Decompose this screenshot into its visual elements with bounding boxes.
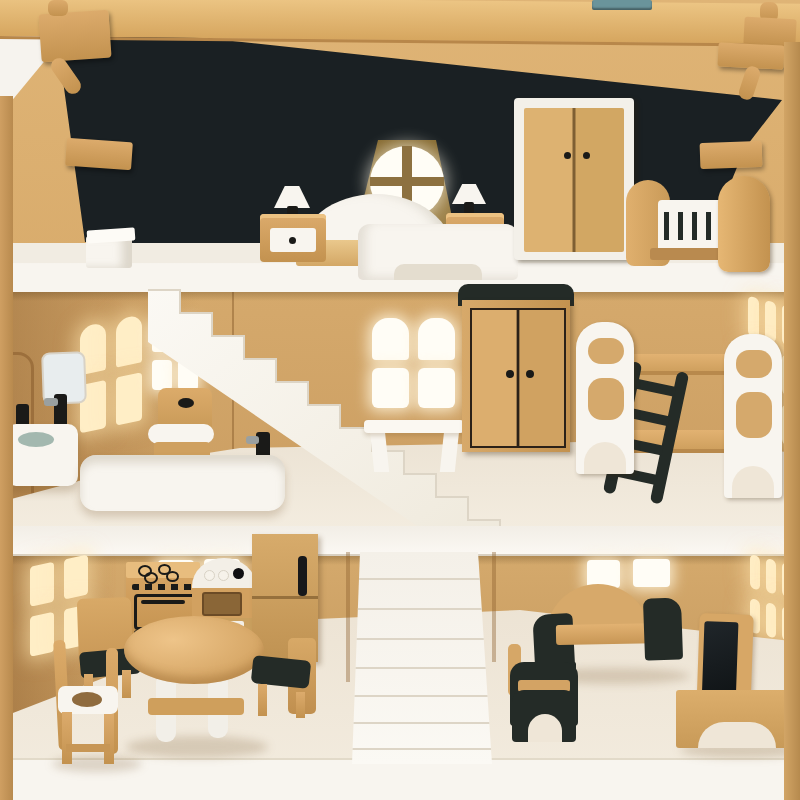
right-outer-wall xyxy=(784,42,800,800)
bathtub xyxy=(80,455,285,511)
sink-knob xyxy=(204,570,215,581)
metal-hinge xyxy=(592,0,652,10)
stove-burner xyxy=(144,572,158,584)
panel-cutout xyxy=(588,338,624,364)
sofa-arm-right xyxy=(643,597,683,660)
wardrobe-knob xyxy=(506,370,514,378)
armchair-arch xyxy=(528,714,562,742)
highchair-leg xyxy=(62,712,72,764)
sink-basin xyxy=(18,432,54,447)
center-staircase xyxy=(352,552,492,764)
chair-leg xyxy=(296,692,305,718)
window-slat xyxy=(750,554,760,590)
stair-wall-edge xyxy=(492,552,496,662)
kitchen-sink-basin xyxy=(202,592,242,616)
toilet-seat xyxy=(148,424,214,444)
wardrobe-knob xyxy=(526,370,534,378)
chair-leg xyxy=(258,684,267,716)
drawer-knob xyxy=(289,237,296,244)
stair-step-line xyxy=(352,578,492,580)
oven-handle xyxy=(141,600,185,604)
roof-peg-bar xyxy=(700,141,763,169)
roof-peg-block xyxy=(38,10,111,63)
table-brace xyxy=(148,698,244,715)
table-shadow xyxy=(126,736,268,758)
ridge-beam xyxy=(0,0,800,47)
highchair-crossbar xyxy=(66,744,110,752)
fridge-seam xyxy=(252,596,318,599)
toilet-flush-button xyxy=(178,398,194,408)
window-slat xyxy=(748,296,759,339)
left-outer-wall xyxy=(0,96,13,800)
sink-knob-black xyxy=(233,568,244,579)
roof-peg-dowel xyxy=(48,0,68,16)
panel-arch xyxy=(732,466,774,498)
wardrobe-knob xyxy=(583,152,590,159)
panel-cutout xyxy=(736,350,772,378)
stair-wall-edge xyxy=(346,552,350,682)
tv-bench xyxy=(676,690,798,748)
wardrobe-doors xyxy=(470,308,566,448)
bunk-panel-right xyxy=(724,334,782,498)
bench-arch xyxy=(698,722,776,748)
roof-peg-bar xyxy=(65,138,133,171)
living-window xyxy=(633,559,670,587)
wardrobe-knob xyxy=(564,152,571,159)
stair-step-line xyxy=(352,608,492,610)
window-slat xyxy=(766,558,776,594)
window-pane xyxy=(30,612,54,657)
ladder-rung xyxy=(635,379,676,397)
panel-cutout xyxy=(736,392,772,438)
middle-floor-slab xyxy=(0,526,800,556)
dollhouse-photo xyxy=(0,0,800,800)
table-top xyxy=(124,616,264,684)
highchair-seat-hole xyxy=(72,692,102,707)
window-pane xyxy=(64,554,88,599)
stair-step-line xyxy=(352,722,492,724)
stair-step-line xyxy=(352,638,492,640)
ladder-rung xyxy=(629,408,670,426)
sink-knob xyxy=(218,570,229,581)
panel-arch xyxy=(584,442,626,474)
wardrobe-doors xyxy=(524,108,624,252)
window-slat xyxy=(766,602,776,638)
crib-slats xyxy=(664,212,720,240)
window-mullion-horizontal xyxy=(370,177,444,186)
stove-burner xyxy=(166,571,179,582)
window-pane xyxy=(30,562,54,607)
bed-footboard-arch xyxy=(394,264,482,280)
fridge-handle xyxy=(298,556,307,596)
panel-cutout xyxy=(588,378,624,420)
stair-step-line xyxy=(352,748,492,750)
stair-step-line xyxy=(352,667,492,669)
faucet-spout xyxy=(44,398,58,406)
tub-spout xyxy=(246,436,259,444)
highchair-leg xyxy=(104,714,114,764)
crib-end-right xyxy=(718,176,770,272)
stair-step-line xyxy=(352,695,492,697)
stove-controls xyxy=(132,584,194,590)
chair-leg xyxy=(122,670,131,698)
bunk-panel-left xyxy=(576,322,634,474)
desk-top xyxy=(364,420,464,433)
